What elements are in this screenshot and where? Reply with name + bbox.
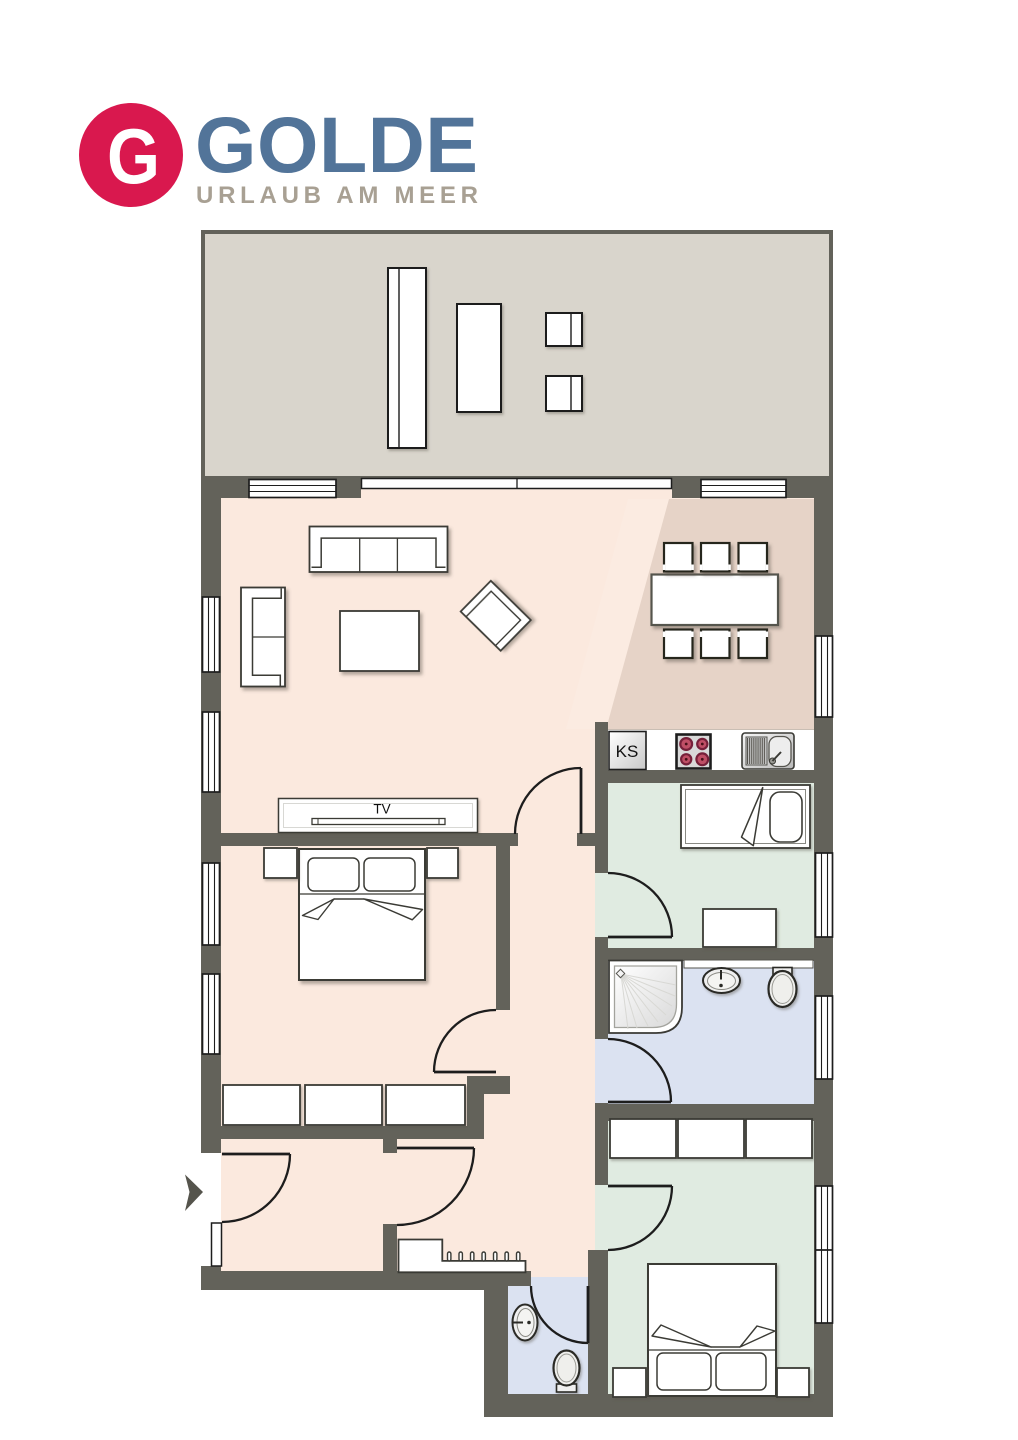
svg-text:TV: TV: [373, 802, 390, 817]
svg-text:GOLDE: GOLDE: [195, 100, 478, 189]
svg-text:KS: KS: [616, 742, 639, 761]
svg-text:G: G: [107, 112, 160, 200]
